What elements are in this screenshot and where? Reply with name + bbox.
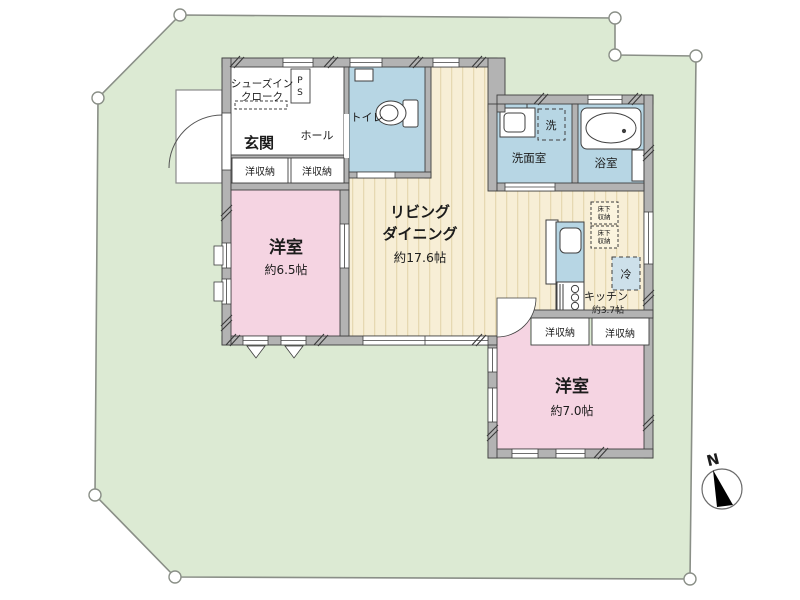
- bedroom1-label: 洋室: [269, 237, 303, 258]
- wall-right: [644, 95, 653, 458]
- bedroom2-size: 約7.0帖: [550, 403, 593, 418]
- toilet-label: トイレ: [351, 111, 384, 124]
- washer-label: 洗: [546, 119, 557, 132]
- closet-c-label: 洋収納: [545, 326, 575, 339]
- wall-toilet-right: [425, 67, 431, 178]
- survey-marker: [684, 573, 696, 585]
- survey-marker: [169, 571, 181, 583]
- fridge-label: 冷: [621, 268, 632, 281]
- shoe-closet-label: シューズイン: [231, 77, 293, 90]
- hall-living-opening: [344, 114, 349, 158]
- bath-counter: [632, 150, 644, 181]
- living-label1: リビング: [390, 203, 450, 221]
- genkan-label: 玄関: [244, 134, 274, 152]
- closet-b-label: 洋収納: [302, 165, 332, 178]
- underfloor-b-label1: 床下: [598, 228, 612, 237]
- survey-marker: [174, 9, 186, 21]
- survey-marker: [609, 12, 621, 24]
- bath-label: 浴室: [595, 156, 618, 170]
- wall-bedroom1-top: [231, 183, 349, 190]
- survey-marker: [609, 49, 621, 61]
- ps-label-s: S: [297, 88, 303, 98]
- porch-step: [176, 90, 222, 183]
- shutter-box: [214, 246, 223, 265]
- living-size: 約17.6帖: [394, 250, 447, 265]
- kitchen-sink: [560, 228, 581, 253]
- ps-label-p: P: [297, 76, 303, 86]
- toilet-sliding-door: [357, 172, 395, 178]
- shoe-closet-label2: クローク: [241, 91, 283, 103]
- shutter-box: [214, 282, 223, 301]
- survey-marker: [92, 92, 104, 104]
- closet-a-label: 洋収納: [245, 165, 275, 178]
- bathtub-drain: [622, 129, 625, 132]
- kitchen-label: キッチン: [584, 290, 628, 303]
- wall-washroom-left: [488, 104, 497, 191]
- stove: [557, 282, 584, 312]
- washroom-label: 洗面室: [512, 151, 547, 165]
- closet-d-label: 洋収納: [605, 327, 635, 340]
- entrance-porch: [169, 90, 222, 183]
- entrance-opening: [222, 113, 231, 170]
- wall-wash-bath-divider: [572, 104, 578, 183]
- hall-label: ホール: [301, 129, 334, 142]
- living-label2: ダイニング: [382, 225, 457, 243]
- bedroom2-label: 洋室: [555, 376, 589, 397]
- survey-marker: [89, 489, 101, 501]
- toilet-paper-holder: [355, 69, 373, 81]
- floor-plan-canvas: シューズイン クローク P S 玄関 ホール トイレ 洋収納 洋収納 洋室 約6…: [0, 0, 800, 600]
- kitchen-size: 約3.7帖: [592, 304, 624, 316]
- survey-marker: [690, 50, 702, 62]
- compass: N: [702, 450, 742, 509]
- underfloor-b-label2: 収納: [598, 236, 611, 245]
- underfloor-a-label1: 床下: [598, 204, 612, 213]
- bedroom1-size: 約6.5帖: [264, 262, 307, 277]
- compass-n-label: N: [705, 450, 722, 471]
- underfloor-a-label2: 収納: [598, 212, 611, 221]
- floor-plan-page: シューズイン クローク P S 玄関 ホール トイレ 洋収納 洋収納 洋室 約6…: [0, 0, 800, 600]
